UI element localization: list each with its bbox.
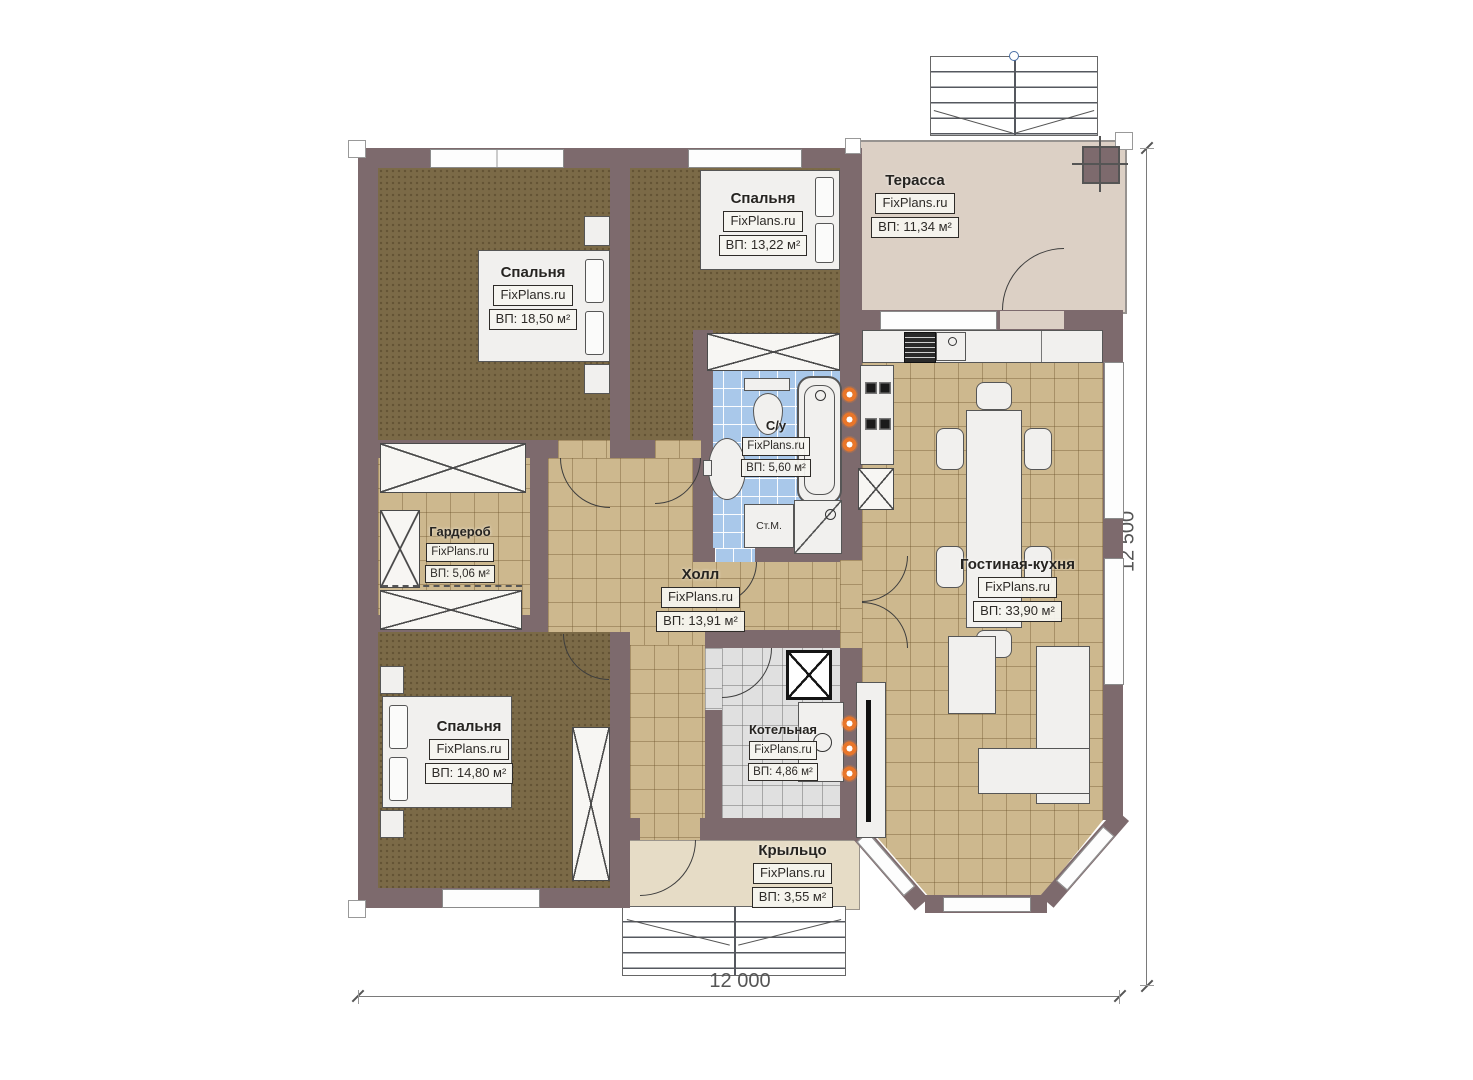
room-label-bedroom1: Спальня FixPlans.ru ВП: 18,50 м²	[470, 264, 596, 330]
tv-stand	[856, 682, 886, 838]
radiator-icon	[841, 765, 858, 782]
burner	[865, 382, 877, 394]
toilet-tank	[744, 378, 790, 391]
room-area: ВП: 18,50 м²	[489, 309, 578, 330]
opening-bedroom1	[558, 440, 610, 458]
room-title: Холл	[682, 566, 720, 583]
dimension-line-right	[1146, 148, 1147, 986]
tv	[866, 700, 871, 822]
watermark: FixPlans.ru	[753, 863, 832, 884]
room-area: ВП: 11,34 м²	[871, 217, 959, 238]
pillow	[389, 705, 408, 749]
shower-tray	[794, 500, 842, 554]
counter-divider	[1041, 331, 1042, 362]
corner-tick-topleft	[348, 140, 366, 158]
window-bedroom3-bottom	[442, 889, 540, 908]
boiler-unit	[786, 650, 832, 700]
watermark: FixPlans.ru	[429, 739, 508, 760]
room-area: ВП: 13,91 м²	[656, 611, 745, 632]
terrace-stairs	[930, 56, 1098, 136]
opening-bedroom2	[655, 440, 701, 458]
room-label-porch: Крыльцо FixPlans.ru ВП: 3,55 м²	[735, 842, 850, 908]
chair	[976, 382, 1012, 410]
dimension-width: 12 000	[680, 970, 800, 993]
room-area: ВП: 5,06 м²	[425, 565, 495, 584]
room-title: Гостиная-кухня	[960, 556, 1075, 573]
room-area: ВП: 5,60 м²	[741, 459, 811, 478]
stairs-center-line	[1014, 57, 1016, 135]
watermark: FixPlans.ru	[742, 437, 810, 456]
dim-tick	[1141, 980, 1154, 993]
burner	[879, 418, 891, 430]
radiator-icon	[841, 411, 858, 428]
window-kitchen-right-lower	[1104, 558, 1124, 685]
radiator-icon	[841, 436, 858, 453]
room-label-bathroom: С/у FixPlans.ru ВП: 5,60 м²	[726, 418, 826, 477]
terrace-column	[1082, 146, 1120, 184]
room-title: Терасса	[885, 172, 944, 189]
corner-tick-topmid	[845, 138, 861, 154]
wall-porch-top-a	[622, 818, 640, 840]
dim-tick	[1114, 990, 1127, 1003]
window-bedroom2-top	[688, 149, 802, 168]
window-kitchen-right-upper	[1104, 362, 1124, 519]
floor-plan: Ст.М.	[0, 0, 1473, 1080]
wardrobe-cabinet-top	[380, 443, 526, 493]
room-area: ВП: 13,22 м²	[719, 235, 808, 256]
room-label-wardrobe: Гардероб FixPlans.ru ВП: 5,06 м²	[410, 524, 510, 583]
room-title: Крыльцо	[758, 842, 826, 859]
opening-bathroom	[715, 548, 755, 562]
wall-bath-bottom-a	[693, 548, 715, 562]
window-kitchen-top	[880, 311, 997, 330]
nightstand	[584, 216, 610, 246]
watermark: FixPlans.ru	[749, 741, 817, 760]
dimension-line-bottom	[358, 996, 1120, 997]
watermark: FixPlans.ru	[723, 211, 802, 232]
bathtub-drain	[815, 390, 826, 401]
opening-hall-kitchen	[840, 560, 862, 648]
nightstand	[584, 364, 610, 394]
watermark: FixPlans.ru	[493, 285, 572, 306]
room-title: Спальня	[731, 190, 796, 207]
wall-boiler-top	[705, 630, 862, 648]
steps-arrow-left	[627, 919, 730, 946]
watermark: FixPlans.ru	[426, 543, 494, 562]
wall-left	[358, 148, 378, 908]
radiator-icon	[841, 715, 858, 732]
wall-bed2-bottom	[630, 440, 655, 458]
burner	[879, 382, 891, 394]
stairs-marker	[1009, 51, 1019, 61]
hall-floor-corridor	[630, 645, 705, 840]
sink-drainer	[904, 332, 936, 363]
radiator-group-kitchen	[841, 386, 858, 453]
burner	[865, 418, 877, 430]
wall-bay-bottom	[925, 895, 1047, 913]
faucet-dot	[948, 337, 957, 346]
room-title: Спальня	[437, 718, 502, 735]
room-area: ВП: 33,90 м²	[973, 601, 1062, 622]
washbasin-faucet	[703, 460, 712, 476]
watermark: FixPlans.ru	[875, 193, 954, 214]
room-area: ВП: 14,80 м²	[425, 763, 514, 784]
room-label-hall: Холл FixPlans.ru ВП: 13,91 м²	[648, 566, 753, 632]
washing-machine: Ст.М.	[744, 504, 794, 548]
room-title: Спальня	[501, 264, 566, 281]
washing-machine-label: Ст.М.	[745, 505, 793, 547]
room-label-boiler: Котельная FixPlans.ru ВП: 4,86 м²	[728, 722, 838, 781]
porch-steps	[622, 906, 846, 976]
dim-ext	[1119, 990, 1120, 1004]
wall-bed3-right	[610, 632, 630, 908]
kitchen-counter	[862, 330, 1103, 363]
watermark: FixPlans.ru	[978, 577, 1057, 598]
wall-wardrobe-right	[530, 440, 548, 615]
wall-porch-top-b	[700, 818, 862, 840]
wardrobe-cabinet-bottom	[380, 590, 522, 630]
chair	[1024, 428, 1052, 470]
stairs-arrow-left	[934, 110, 1013, 134]
nightstand	[380, 810, 404, 838]
wall-bed1-bed2	[610, 168, 630, 458]
watermark: FixPlans.ru	[661, 587, 740, 608]
wardrobe-bedroom2	[707, 333, 840, 371]
steps-center-line	[734, 907, 736, 975]
room-area: ВП: 4,86 м²	[748, 763, 818, 782]
dim-ext	[1140, 148, 1154, 149]
room-label-living: Гостиная-кухня FixPlans.ru ВП: 33,90 м²	[950, 556, 1085, 622]
corner-tick-bottomleft	[348, 900, 366, 918]
wardrobe-bedroom3	[572, 727, 610, 881]
pillow	[389, 757, 408, 801]
stove-column	[860, 365, 894, 465]
steps-arrow-right	[738, 919, 841, 946]
sink-basin	[936, 332, 966, 361]
dim-ext	[358, 990, 359, 1004]
bay-window-bottom	[943, 897, 1031, 912]
room-title: Гардероб	[429, 524, 490, 539]
opening-boiler	[705, 648, 722, 710]
dishwasher	[858, 468, 894, 510]
coffee-table	[948, 636, 996, 714]
stairs-arrow-right	[1015, 110, 1094, 134]
nightstand	[380, 666, 404, 694]
room-title: С/у	[766, 418, 786, 433]
room-label-bedroom2: Спальня FixPlans.ru ВП: 13,22 м²	[700, 190, 826, 256]
wall-boiler-left	[705, 710, 722, 820]
radiator-icon	[841, 740, 858, 757]
room-label-terrace: Терасса FixPlans.ru ВП: 11,34 м²	[855, 172, 975, 238]
radiator-icon	[841, 386, 858, 403]
chair	[936, 428, 964, 470]
shower-drain	[825, 509, 836, 520]
window-bedroom1-top	[430, 149, 564, 168]
dim-ext	[1140, 985, 1154, 986]
wardrobe-dashed-line	[382, 585, 522, 587]
radiator-group-living	[841, 715, 858, 782]
room-label-bedroom3: Спальня FixPlans.ru ВП: 14,80 м²	[408, 718, 530, 784]
sofa-horizontal	[978, 748, 1090, 794]
column-axis-v	[1099, 136, 1101, 192]
room-title: Котельная	[749, 722, 817, 737]
opening-terrace-door	[1000, 311, 1064, 329]
room-area: ВП: 3,55 м²	[752, 887, 833, 908]
